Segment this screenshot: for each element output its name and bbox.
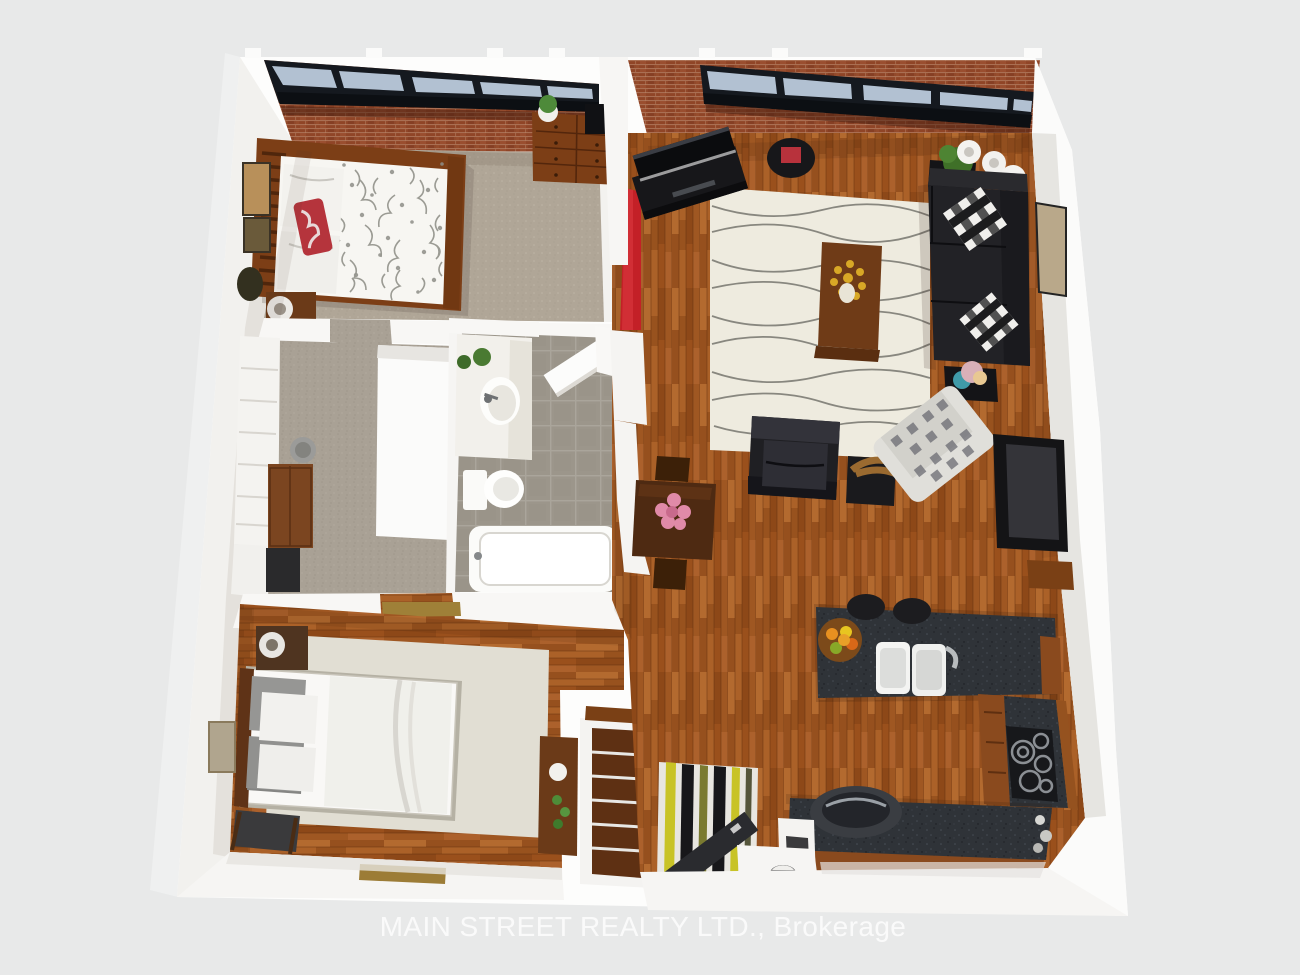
svg-text:MAIN STREET REALTY LTD., Broke: MAIN STREET REALTY LTD., Brokerage xyxy=(380,911,907,942)
